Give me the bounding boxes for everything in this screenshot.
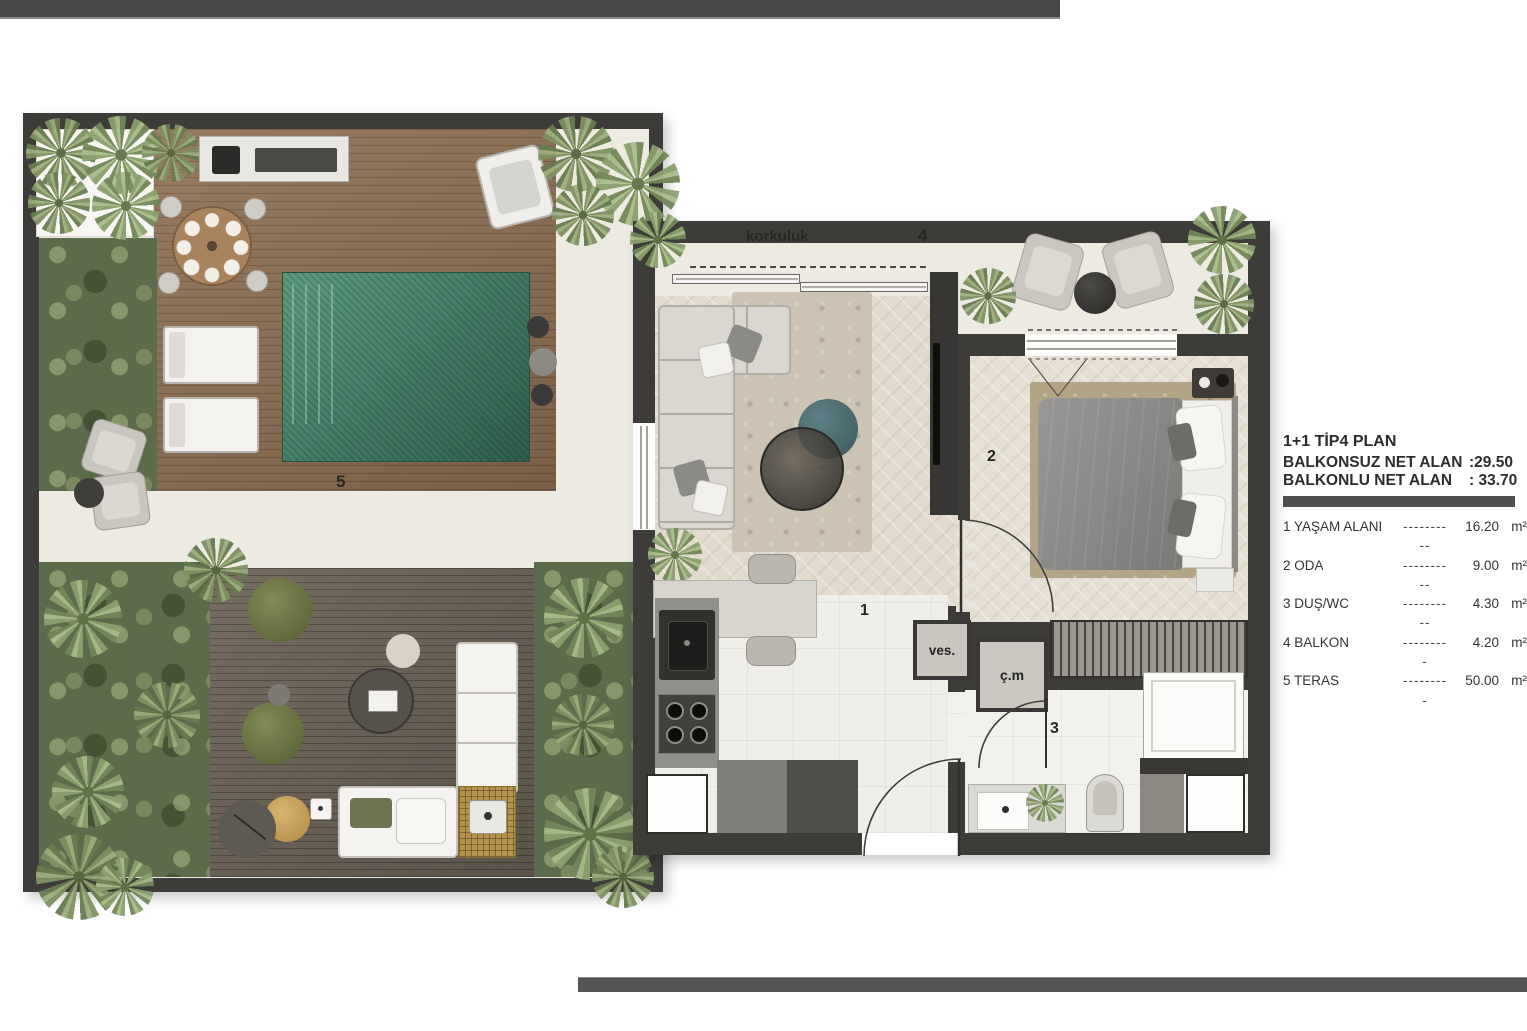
bath-wall-strip xyxy=(1140,758,1248,774)
round-mat xyxy=(218,800,276,858)
coffee-table-glass xyxy=(760,427,844,511)
small-table xyxy=(310,798,332,820)
throw-pillow-light xyxy=(691,479,729,517)
item-unit: m² xyxy=(1499,633,1527,652)
item-dots: --------- xyxy=(1401,671,1449,710)
palm-icon xyxy=(92,172,160,240)
sun-lounger xyxy=(163,397,259,453)
dining-table xyxy=(172,206,252,286)
decor-icon xyxy=(1216,374,1229,387)
island-chair xyxy=(746,636,796,666)
appliance-box xyxy=(646,774,708,834)
dining-chair xyxy=(160,196,182,218)
burner-icon xyxy=(666,702,684,720)
legend-title: 1+1 TİP4 PLAN xyxy=(1283,433,1527,451)
chair-cushion xyxy=(91,429,138,473)
palm-icon xyxy=(648,528,702,582)
burner-icon xyxy=(690,726,708,744)
item-dots: ---------- xyxy=(1401,594,1449,633)
bed-duvet xyxy=(1038,398,1182,570)
dining-chair xyxy=(244,198,266,220)
legend-area-line: BALKONLU NET ALAN : 33.70 M² xyxy=(1283,472,1527,490)
item-label: 1 YAŞAM ALANI xyxy=(1283,517,1401,536)
side-table xyxy=(527,316,549,338)
room-number-bath: 3 xyxy=(1050,720,1059,738)
legend-area-line: BALKONSUZ NET ALAN :29.50 M² xyxy=(1283,454,1527,472)
terrace-door-glazing xyxy=(633,423,655,530)
coffee-table xyxy=(348,668,414,734)
palm-icon xyxy=(52,756,124,828)
tv-icon xyxy=(933,343,940,465)
bedroom-window xyxy=(1025,334,1177,356)
side-table xyxy=(74,478,104,508)
legend-item: 1 YAŞAM ALANI ---------- 16.20 m² xyxy=(1283,517,1527,556)
item-value: 16.20 xyxy=(1449,517,1499,536)
item-value: 4.20 xyxy=(1449,633,1499,652)
entrance-opening xyxy=(862,833,960,855)
burner-icon xyxy=(690,702,708,720)
faucet-icon xyxy=(684,640,690,646)
balcony-table xyxy=(1074,272,1116,314)
sliding-door-frame xyxy=(672,274,800,284)
railing-label: korkuluk xyxy=(746,228,809,245)
floorplan-page: ves. ç.m xyxy=(0,0,1527,1031)
laundry-label: ç.m xyxy=(1000,667,1024,683)
island-chair xyxy=(748,554,796,584)
palm-icon xyxy=(142,124,200,182)
sofa-pillow xyxy=(396,798,446,844)
toilet xyxy=(1086,774,1124,832)
cup xyxy=(484,812,492,820)
legend-item: 4 BALKON --------- 4.20 m² xyxy=(1283,633,1527,672)
palm-icon xyxy=(96,858,154,916)
sliding-door-frame xyxy=(800,282,928,292)
cream-pouf xyxy=(386,634,420,668)
chair-cushion xyxy=(488,158,542,215)
item-value: 9.00 xyxy=(1449,556,1499,575)
top-divider-bar xyxy=(0,0,1060,19)
item-label: 5 TERAS xyxy=(1283,671,1401,690)
palm-icon xyxy=(960,268,1016,324)
legend-item: 5 TERAS --------- 50.00 m² xyxy=(1283,671,1527,710)
vestibule-box: ves. xyxy=(913,620,971,680)
shower-tray xyxy=(1143,672,1244,760)
mat-stick xyxy=(234,814,267,840)
item-dots: ---------- xyxy=(1401,556,1449,595)
outdoor-sofa-vertical xyxy=(456,642,518,794)
palm-icon xyxy=(592,846,654,908)
bath-gray-zone xyxy=(1140,774,1184,833)
bottom-divider-bar xyxy=(578,977,1527,992)
cooktop xyxy=(658,694,716,754)
olive-pouf xyxy=(242,702,304,764)
item-value: 4.30 xyxy=(1449,594,1499,613)
palm-icon xyxy=(544,578,624,658)
item-unit: m² xyxy=(1499,594,1527,613)
toilet-seat xyxy=(1093,781,1117,815)
room-number-living: 1 xyxy=(860,602,869,620)
lower-cabinet xyxy=(717,760,787,833)
dining-chair xyxy=(158,272,180,294)
item-label: 4 BALKON xyxy=(1283,633,1401,652)
vestibule-label: ves. xyxy=(929,643,955,658)
throw-pillow-light xyxy=(697,341,735,379)
palm-icon xyxy=(552,184,614,246)
side-table xyxy=(268,684,290,706)
side-table xyxy=(529,348,557,376)
headboard xyxy=(1232,396,1238,572)
palm-icon xyxy=(1188,206,1256,274)
tray xyxy=(469,800,507,834)
dining-chair xyxy=(246,270,268,292)
decor-icon xyxy=(1199,377,1210,388)
area-label: BALKONSUZ NET ALAN xyxy=(1283,454,1469,472)
sink-basin xyxy=(668,621,708,671)
area-label: BALKONLU NET ALAN xyxy=(1283,472,1469,490)
item-unit: m² xyxy=(1499,517,1527,536)
plant-icon xyxy=(1026,784,1064,822)
palm-icon xyxy=(184,538,248,602)
item-dots: ---------- xyxy=(1401,517,1449,556)
shower-inner-line xyxy=(1151,680,1236,752)
legend: 1+1 TİP4 PLAN BALKONSUZ NET ALAN :29.50 … xyxy=(1283,433,1527,710)
lower-cabinet-dark xyxy=(787,760,858,833)
side-table xyxy=(531,384,553,406)
area-value: :29.50 xyxy=(1469,454,1527,472)
bedroom-door-opening xyxy=(956,520,972,612)
room-number-terrace: 5 xyxy=(336,472,345,492)
room-number-bedroom: 2 xyxy=(987,448,996,466)
washer-box xyxy=(1186,774,1245,833)
area-value: : 33.70 xyxy=(1469,472,1527,490)
palm-icon xyxy=(134,682,200,748)
counter-tray xyxy=(255,148,337,172)
item-dots: --------- xyxy=(1401,633,1449,672)
book xyxy=(368,690,398,712)
sun-lounger xyxy=(163,326,259,384)
legend-item: 3 DUŞ/WC ---------- 4.30 m² xyxy=(1283,594,1527,633)
bathroom-door-opening xyxy=(946,692,967,762)
wardrobe xyxy=(1050,620,1248,678)
nightstand xyxy=(1192,368,1234,398)
chair-cushion xyxy=(1023,244,1074,297)
burner-icon xyxy=(666,726,684,744)
palm-icon xyxy=(630,212,686,268)
palm-icon xyxy=(1194,274,1254,334)
dot xyxy=(318,806,323,811)
item-unit: m² xyxy=(1499,556,1527,575)
kitchen-sink xyxy=(659,610,715,680)
grill xyxy=(212,146,240,174)
lounger-pillow xyxy=(169,403,185,447)
chair-cushion xyxy=(1112,242,1163,295)
faucet-icon xyxy=(1002,806,1009,813)
item-unit: m² xyxy=(1499,671,1527,690)
laundry-box: ç.m xyxy=(976,638,1048,712)
legend-item: 2 ODA ---------- 9.00 m² xyxy=(1283,556,1527,595)
pool-steps xyxy=(292,284,342,424)
legend-divider-bar xyxy=(1283,496,1515,507)
item-value: 50.00 xyxy=(1449,671,1499,690)
olive-pouf xyxy=(248,578,312,642)
palm-icon xyxy=(44,580,122,658)
item-label: 2 ODA xyxy=(1283,556,1401,575)
item-label: 3 DUŞ/WC xyxy=(1283,594,1401,613)
sofa-cushion-olive xyxy=(350,798,392,828)
nightstand xyxy=(1196,568,1234,592)
room-number-balcony: 4 xyxy=(918,226,927,246)
lounger-pillow xyxy=(169,332,185,378)
palm-icon xyxy=(28,172,90,234)
palm-icon xyxy=(552,694,614,756)
rattan-table xyxy=(458,786,516,858)
chair-cushion xyxy=(99,482,141,521)
